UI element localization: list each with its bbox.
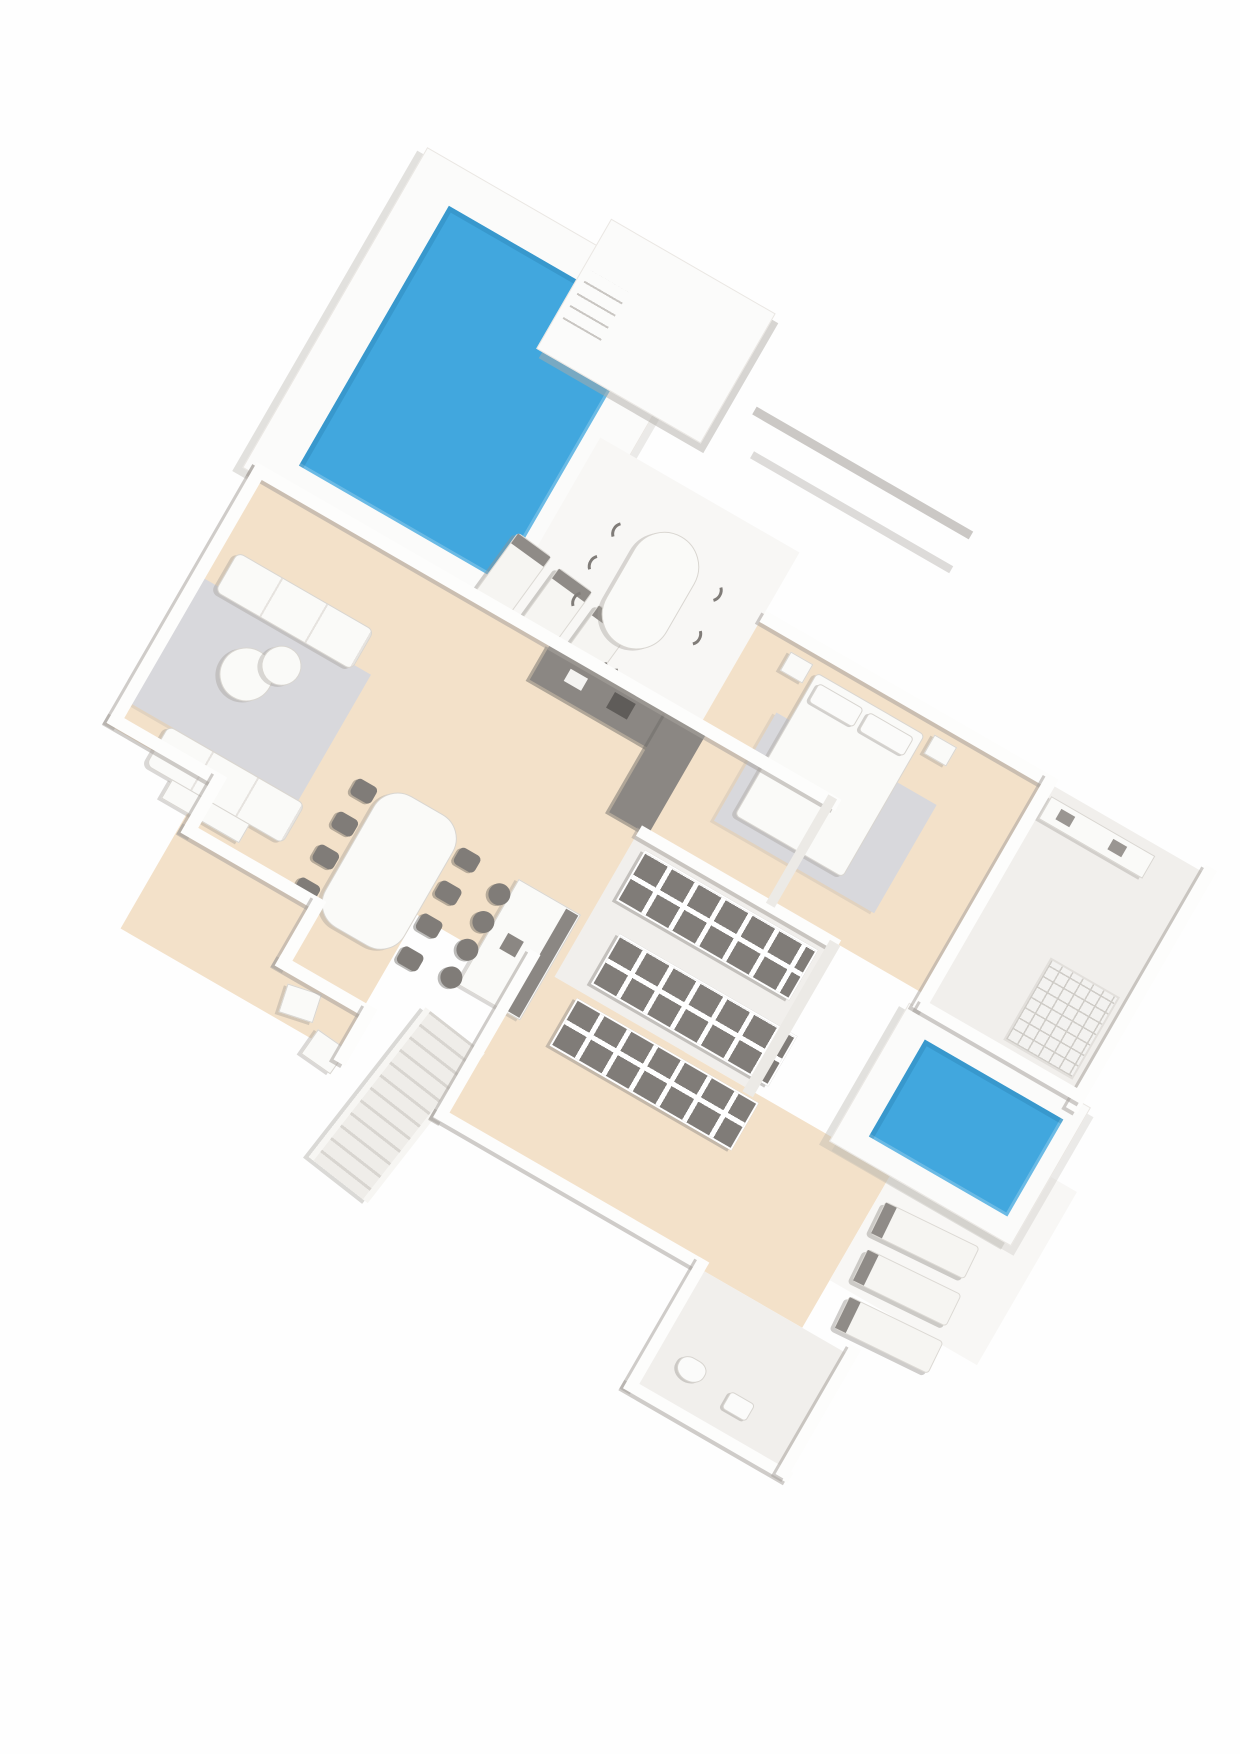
dining-chair — [395, 945, 425, 973]
scanned-floor-plan-page — [0, 0, 1240, 1754]
floor-plan — [0, 0, 1240, 1667]
bar-stool — [436, 962, 466, 992]
